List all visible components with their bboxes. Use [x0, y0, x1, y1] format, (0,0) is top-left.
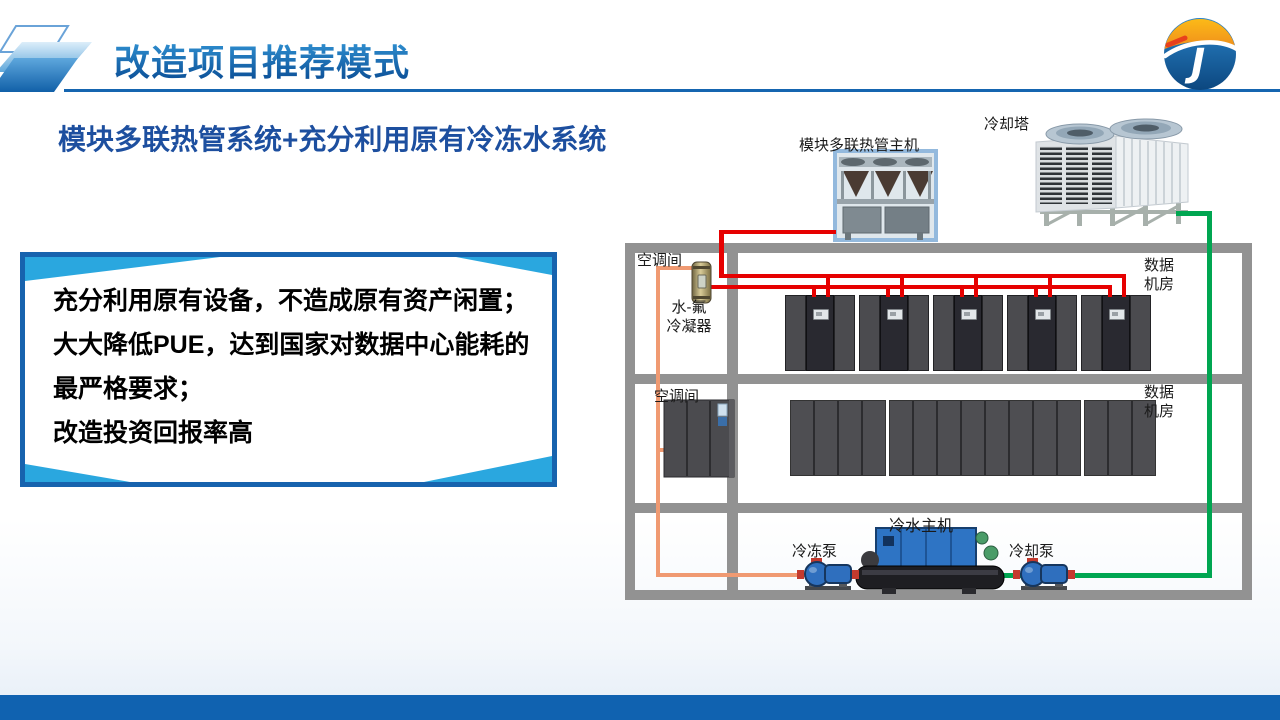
- label-ac-room-1: 空调间: [637, 249, 682, 270]
- rack-panel: [859, 295, 880, 371]
- refrigerant-drop: [812, 285, 816, 297]
- rack-screen: [1035, 309, 1051, 320]
- chiller-unit: [854, 526, 1006, 596]
- rack-panel: [880, 295, 908, 371]
- server-rack-group: [1007, 295, 1077, 371]
- refrigerant-manifold-upper: [721, 274, 1126, 278]
- rack-screen: [1109, 309, 1125, 320]
- label-cooling-pump: 冷却泵: [1009, 540, 1054, 561]
- refrigerant-pipe: [719, 230, 724, 278]
- footer-bar: [0, 695, 1280, 720]
- cooling-tower-image: [1028, 116, 1196, 228]
- label-data-room-line2: 机房: [1144, 275, 1174, 294]
- chilled-water-pipe: [656, 266, 660, 577]
- rack-panel: [982, 295, 1003, 371]
- server-rack-group: [785, 295, 855, 371]
- label-ac-room-2: 空调间: [654, 385, 699, 406]
- label-chilled-pump: 冷冻泵: [792, 540, 837, 561]
- refrigerant-pipe: [722, 230, 836, 234]
- rack-panel: [806, 295, 834, 371]
- rack-panel: [1130, 295, 1151, 371]
- label-condenser-line1: 水-氟: [661, 298, 717, 317]
- refrigerant-drop: [1048, 274, 1052, 297]
- cooling-water-pump: [1013, 556, 1075, 592]
- heat-pipe-unit-image: [833, 149, 938, 242]
- rack-panel: [785, 295, 806, 371]
- wall-left: [625, 243, 635, 600]
- label-condenser: 水-氟 冷凝器: [661, 298, 717, 336]
- refrigerant-drop: [1034, 285, 1038, 297]
- rack-panel: [1028, 295, 1056, 371]
- label-data-room-2: 数据 机房: [1144, 383, 1174, 421]
- rack-screen: [887, 309, 903, 320]
- rack-panel: [954, 295, 982, 371]
- chilled-water-pump: [797, 556, 859, 592]
- refrigerant-drop: [960, 285, 964, 297]
- label-data-room-1: 数据 机房: [1144, 256, 1174, 294]
- label-data-room-line1: 数据: [1144, 256, 1174, 275]
- rack-panel: [908, 295, 929, 371]
- refrigerant-drop: [1122, 274, 1126, 297]
- label-heat-pipe-unit: 模块多联热管主机: [799, 134, 919, 155]
- cooling-water-pipe: [1207, 211, 1212, 578]
- slide: { "header": { "title": "改造项目推荐模式", "logo…: [0, 0, 1280, 720]
- rack-panel: [1081, 295, 1102, 371]
- wall-right: [1242, 243, 1252, 600]
- refrigerant-drop: [900, 274, 904, 297]
- label-chiller: 冷水主机: [889, 512, 953, 536]
- refrigerant-drop: [826, 274, 830, 297]
- server-rack-group: [859, 295, 929, 371]
- system-diagram: 模块多联热管主机 冷却塔 空调间 水-氟 冷凝器 数据 机房 空调间 数据 机房…: [0, 0, 1280, 720]
- rack-panel: [1056, 295, 1077, 371]
- rack-panel: [1102, 295, 1130, 371]
- rack-panel: [834, 295, 855, 371]
- refrigerant-drop: [886, 285, 890, 297]
- refrigerant-drop: [1108, 285, 1112, 297]
- server-rack-group: [933, 295, 1003, 371]
- label-data-room-line2: 机房: [1144, 402, 1174, 421]
- label-condenser-line2: 冷凝器: [661, 317, 717, 336]
- server-rack-row: [889, 400, 1081, 476]
- label-cooling-tower: 冷却塔: [984, 113, 1029, 134]
- refrigerant-drop: [974, 274, 978, 297]
- server-rack-group: [1081, 295, 1151, 371]
- rack-screen: [813, 309, 829, 320]
- rack-screen: [961, 309, 977, 320]
- rack-panel: [933, 295, 954, 371]
- crac-unit: [663, 399, 735, 478]
- rack-panel: [1007, 295, 1028, 371]
- server-rack-row: [790, 400, 886, 476]
- label-data-room-line1: 数据: [1144, 383, 1174, 402]
